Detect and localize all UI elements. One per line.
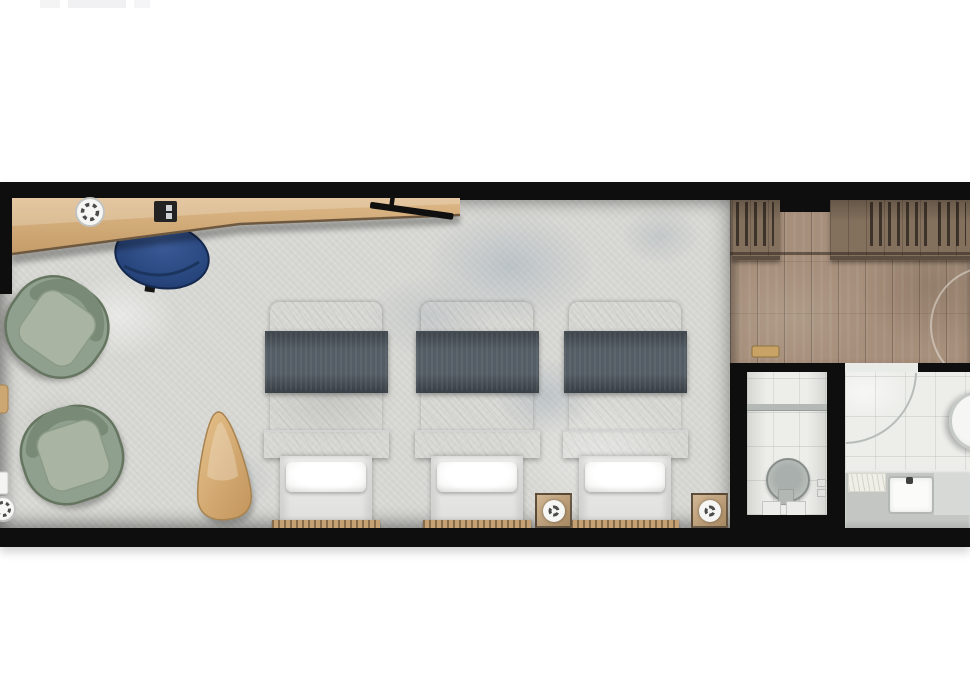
wall-bottom: [0, 528, 970, 547]
cropped-logo-mark: [40, 0, 150, 8]
wardrobe-section-left: [732, 198, 780, 260]
wardrobe-front-edge: [730, 252, 970, 255]
wall-bathroom-top: [918, 363, 970, 372]
wc-glass-partition: [747, 404, 827, 411]
wall-wc-bottom: [747, 515, 827, 528]
wall-left: [0, 182, 12, 294]
flush-button: [817, 479, 826, 487]
toilet-tank: [762, 501, 781, 516]
faucet: [906, 477, 913, 484]
flush-button: [817, 489, 826, 497]
wall-bathroom-left: [730, 363, 747, 547]
bedside-light-1: [535, 493, 572, 528]
bedroom-carpet: [0, 196, 734, 528]
light-symbol-icon: [699, 500, 721, 522]
wall-wc-divider: [827, 363, 845, 528]
bedside-light-2: [691, 493, 728, 528]
hanging-clothes: [870, 202, 930, 246]
bathroom-door-opening: [845, 363, 918, 372]
light-symbol-icon: [543, 500, 565, 522]
floor-plan: [0, 182, 970, 547]
vanity-side-counter: [934, 473, 970, 515]
hanging-clothes: [736, 202, 774, 246]
bath-mat: [848, 473, 886, 492]
wardrobe-section-right: [830, 198, 970, 260]
hanging-clothes: [938, 202, 966, 246]
wall-pillar: [780, 182, 830, 212]
